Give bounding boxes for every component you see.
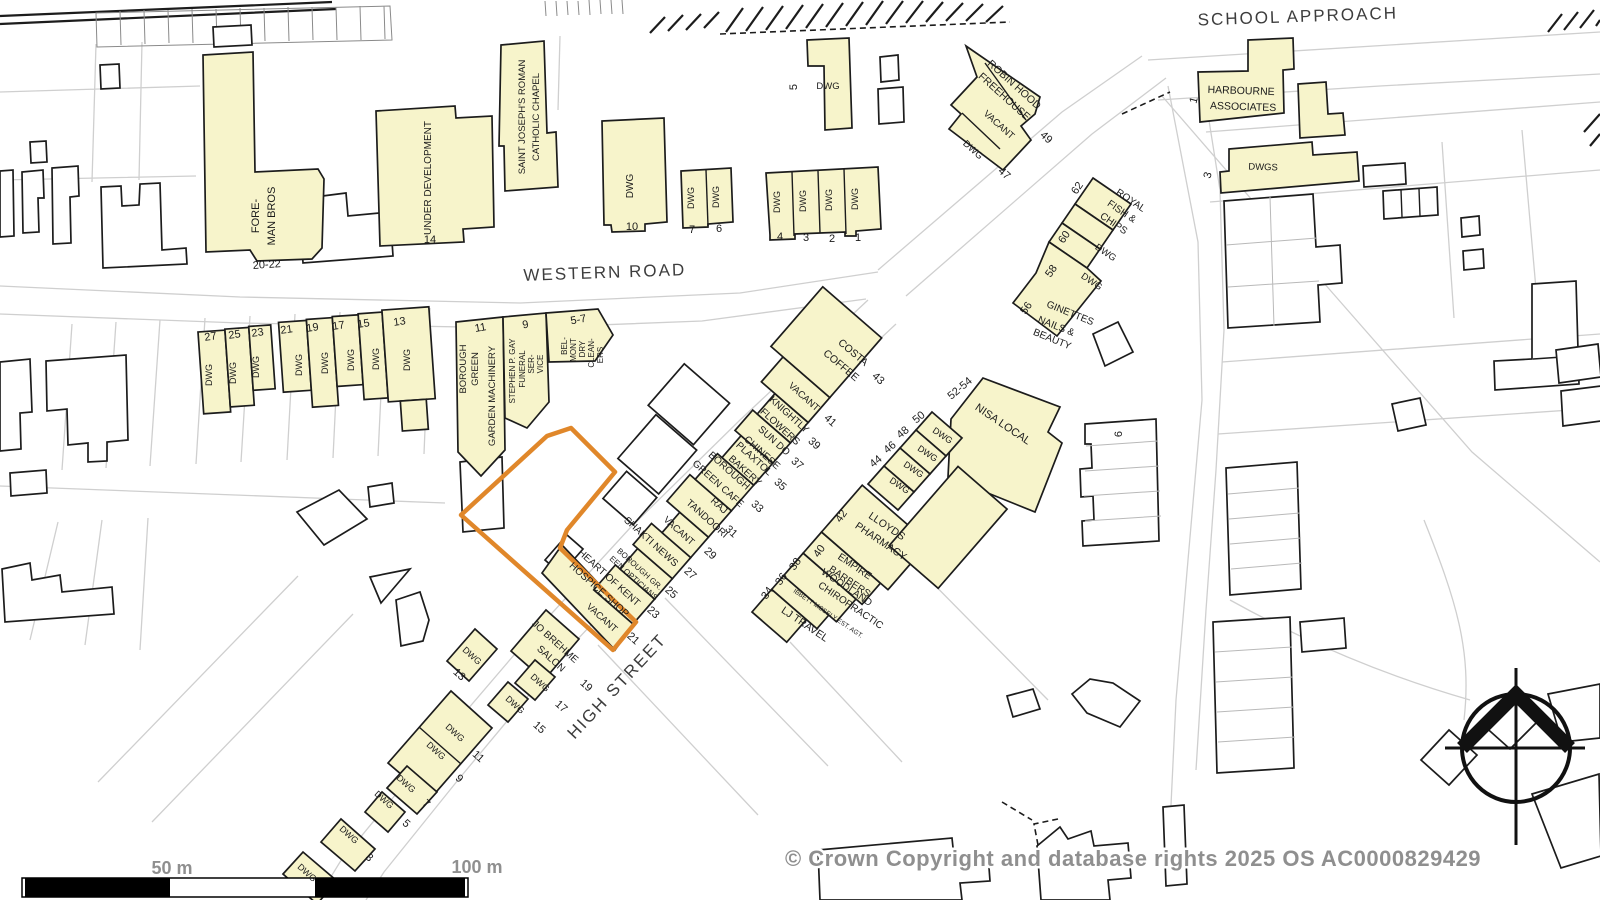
map-label-number-17-w: 17 — [332, 319, 346, 333]
map-label-number-29: 29 — [701, 545, 718, 562]
scale-label-50m: 50 m — [151, 858, 192, 878]
building-st-josephs-chapel — [499, 41, 558, 191]
map-label-dwg-3: DWG — [798, 190, 808, 212]
map-label-dwg-19: DWG — [320, 352, 330, 374]
dashed-boundary-bottom — [1002, 802, 1032, 820]
map-label-chapel-line1: SAINT JOSEPH'S ROMAN — [517, 60, 528, 175]
building-harbourne-annex — [1298, 82, 1345, 138]
map-label-belmont-line2: MONT — [569, 338, 578, 362]
map-label-belmont-line1: BEL- — [560, 337, 569, 355]
map-label-number-39: 39 — [805, 435, 822, 452]
map-label-number-13-w: 13 — [393, 315, 407, 329]
map-label-foreman-line2: MAN BROS — [266, 187, 278, 246]
map-label-number-35: 35 — [771, 476, 788, 493]
map-label-number-17: 17 — [552, 698, 569, 715]
map-label-gm-line2: GREEN — [470, 352, 481, 386]
copyright-text: © Crown Copyright and database rights 20… — [785, 846, 1481, 871]
map-label-number-19-w: 19 — [306, 321, 320, 335]
map-label-dwg-13w: DWG — [402, 349, 412, 371]
street-label-western-road: WESTERN ROAD — [523, 260, 686, 285]
building-foreman-bros — [203, 52, 324, 261]
map-label-foreman-number: 20-22 — [252, 258, 281, 272]
map-label-dwg-5-top: DWG — [816, 81, 839, 92]
map-label-dwg-23: DWG — [251, 356, 261, 378]
map-label-number-27: 27 — [681, 565, 698, 582]
map-label-dwg-1: DWG — [850, 188, 860, 210]
map-label-number-4: 4 — [777, 231, 783, 243]
map-label-dwg-25: DWG — [228, 362, 238, 384]
map-label-number-27-w: 27 — [204, 330, 218, 344]
map-label-number-41: 41 — [821, 412, 838, 429]
map-label-number-6: 6 — [716, 223, 722, 235]
map-label-number-37: 37 — [788, 455, 805, 472]
map-label-dwg-27: DWG — [204, 364, 214, 386]
map-label-number-3-school: 3 — [1202, 171, 1215, 180]
map-label-number-10: 10 — [626, 221, 638, 233]
map-label-number-14: 14 — [424, 234, 436, 246]
map-label-dwg-60: DWG — [1093, 242, 1118, 264]
map-label-harbourne-line2: ASSOCIATES — [1210, 100, 1277, 114]
map-label-number-23-w: 23 — [251, 326, 265, 340]
map-label-gay-line4: VICE — [536, 355, 545, 374]
dashed-boundary-top — [720, 22, 1010, 34]
building-under-development — [376, 106, 494, 246]
map-label-foreman-line1: FORE- — [250, 199, 262, 234]
map-label-under-development: UNDER DEVELOPMENT — [423, 121, 434, 235]
map-label-harbourne-line1: HARBOURNE — [1207, 84, 1274, 98]
map-label-dwg-6: DWG — [711, 186, 721, 208]
scale-label-100m: 100 m — [451, 857, 502, 877]
map-label-dwg-15w: DWG — [371, 348, 381, 370]
map-label-number-11-gm: 11 — [474, 321, 487, 335]
map-label-dwg-2: DWG — [824, 189, 834, 211]
diagonal-hatch-left — [650, 12, 719, 33]
map-label-dwg-7: DWG — [686, 187, 696, 209]
map-label-dwg-21: DWG — [294, 354, 304, 376]
map-label-dwg-17w: DWG — [346, 349, 356, 371]
map-label-number-6-right: 6 — [1113, 431, 1125, 437]
map-label-number-31: 31 — [722, 523, 739, 540]
parking-bays-small — [545, 0, 623, 16]
map-label-number-33: 33 — [748, 498, 765, 515]
map-label-number-1: 1 — [855, 232, 861, 244]
map-label-belmont-line3: DRY — [578, 340, 587, 357]
dashed-boundary-school — [1122, 92, 1170, 114]
building-dwgs — [1220, 142, 1359, 193]
map-label-number-15: 15 — [530, 719, 547, 736]
map-label-dwg-4: DWG — [772, 191, 782, 213]
map-label-belmont-line5: ERS — [596, 347, 605, 363]
map-label-number-5b: 5 — [400, 817, 413, 830]
map-label-number-5-top: 5 — [788, 84, 800, 90]
map-label-number-3: 3 — [803, 232, 809, 244]
map-label-number-43: 43 — [869, 370, 886, 387]
building-dwg-13w-rear — [400, 399, 428, 431]
map-label-chapel-line2: CATHOLIC CHAPEL — [531, 73, 542, 161]
scale-bar — [22, 878, 468, 897]
map-label-number-21-w: 21 — [280, 323, 294, 337]
map-label-gm-line3: GARDEN MACHINERY — [487, 345, 498, 446]
map-label-number-49: 49 — [1037, 129, 1054, 146]
map-label-number-2: 2 — [829, 233, 835, 245]
map-label-dwgs: DWGS — [1248, 161, 1278, 173]
map-label-gay-line2: FUNERAL — [518, 350, 527, 388]
map-label-number-15-w: 15 — [357, 317, 371, 331]
street-label-school-approach: SCHOOL APPROACH — [1197, 4, 1398, 30]
map-label-dwg-10: DWG — [625, 174, 636, 199]
map-label-gm-line1: BOROUGH — [458, 344, 469, 393]
map-canvas[interactable]: WESTERN ROAD HIGH STREET SCHOOL APPROACH… — [0, 0, 1600, 900]
map-svg: WESTERN ROAD HIGH STREET SCHOOL APPROACH… — [0, 0, 1600, 900]
map-label-number-7: 7 — [689, 224, 695, 236]
map-label-gay-line3: SER- — [527, 354, 536, 373]
diagonal-hatch-topright — [1548, 10, 1600, 146]
map-label-belmont-line4: CLEAN- — [587, 338, 596, 368]
map-label-number-25-w: 25 — [228, 328, 242, 342]
map-label-number-19: 19 — [577, 677, 594, 694]
map-label-gay-line1: STEPHEN P. GAY — [508, 338, 517, 404]
labelled-buildings-layer — [197, 38, 1359, 900]
